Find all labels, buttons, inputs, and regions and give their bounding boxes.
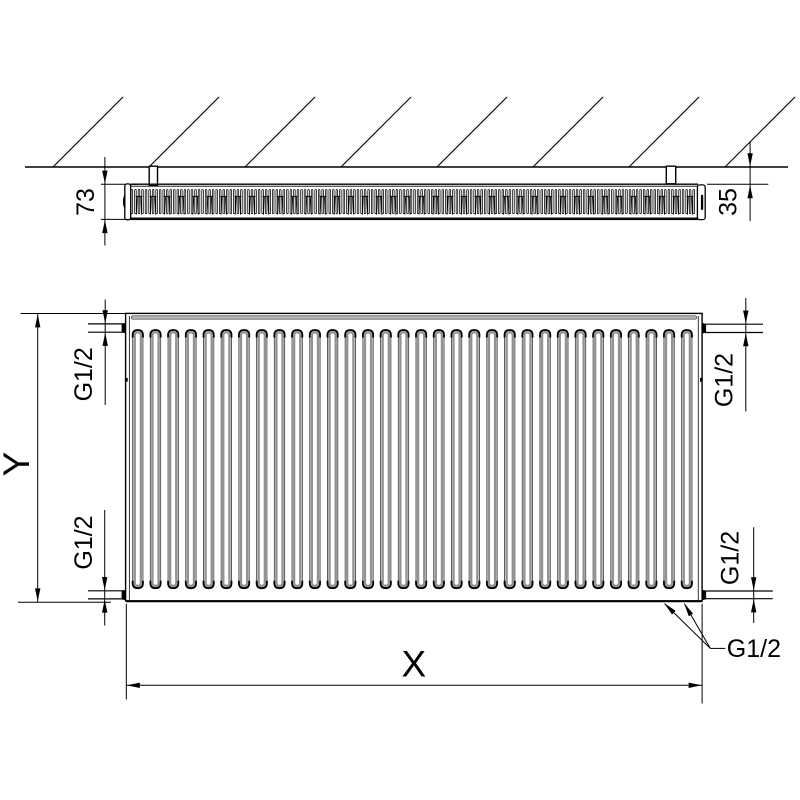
svg-text:G1/2: G1/2 — [70, 515, 98, 569]
svg-text:X: X — [402, 644, 427, 685]
svg-text:G1/2: G1/2 — [70, 347, 98, 401]
svg-text:G1/2: G1/2 — [727, 635, 781, 663]
svg-text:35: 35 — [715, 188, 743, 216]
svg-text:73: 73 — [72, 188, 100, 216]
svg-text:Y: Y — [0, 452, 37, 477]
svg-text:G1/2: G1/2 — [716, 531, 744, 585]
svg-text:G1/2: G1/2 — [711, 353, 739, 407]
